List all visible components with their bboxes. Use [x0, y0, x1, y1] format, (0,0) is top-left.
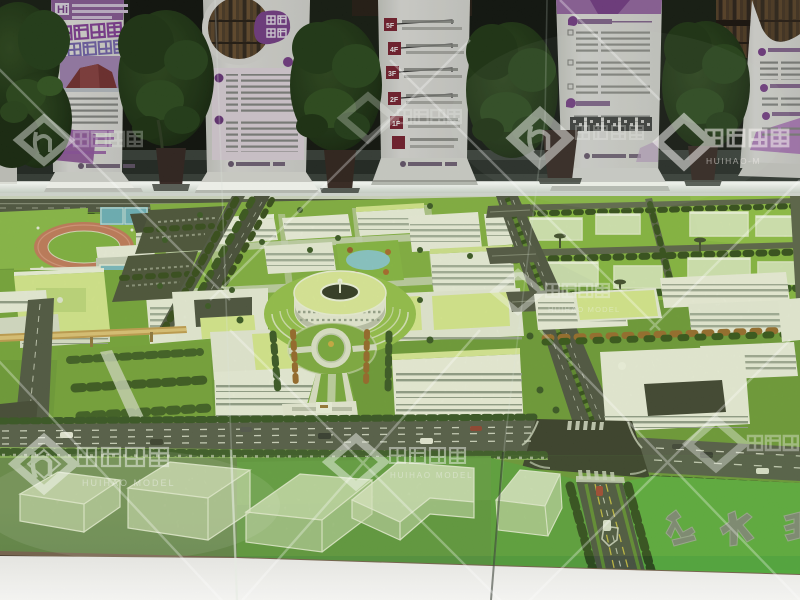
svg-text:HUIHAO MODEL: HUIHAO MODEL	[82, 478, 176, 488]
svg-text:HUIHAO-M: HUIHAO-M	[706, 156, 761, 166]
svg-text:HUIHAO MODEL: HUIHAO MODEL	[548, 305, 620, 314]
svg-text:HUIHAO MODEL: HUIHAO MODEL	[390, 471, 473, 480]
